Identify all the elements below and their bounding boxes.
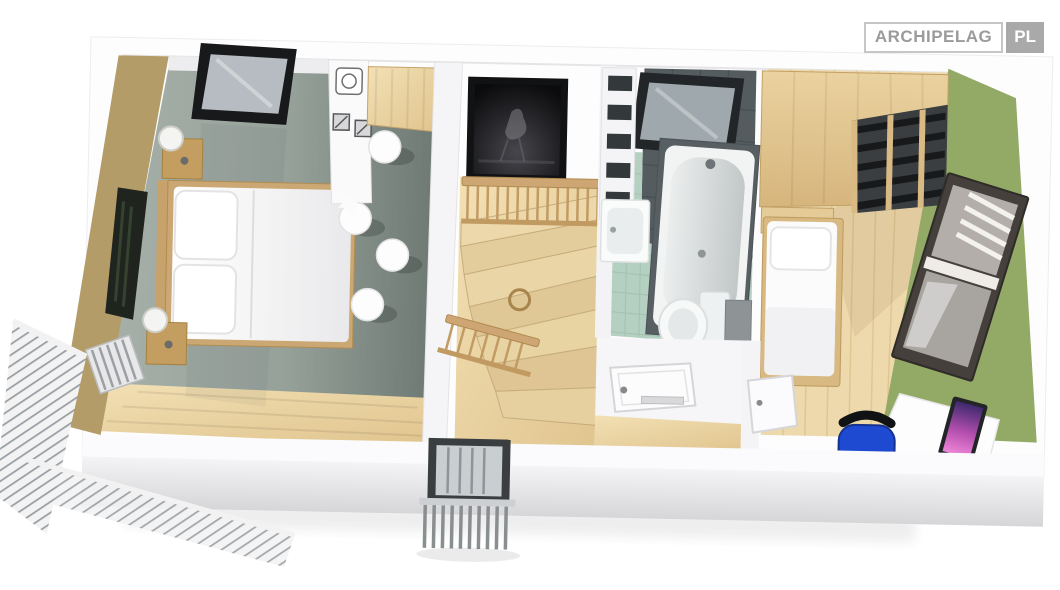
sink	[336, 68, 363, 95]
wall-table	[367, 67, 440, 132]
floorplan-page	[0, 0, 1060, 590]
stool	[368, 131, 401, 164]
skylight-window	[191, 43, 297, 125]
bathroom	[593, 65, 763, 450]
balcony-door	[427, 438, 510, 504]
open-shelves	[849, 103, 947, 215]
duvet	[764, 307, 835, 376]
archipelag-logo: ARCHIPELAG PL	[864, 22, 1044, 53]
stool	[376, 239, 409, 272]
building	[0, 35, 1053, 583]
door-glass	[435, 445, 502, 496]
pillow	[174, 191, 237, 260]
bedroom-right	[740, 65, 1044, 477]
pillow	[770, 227, 831, 270]
single-bed	[760, 217, 844, 387]
stool	[351, 288, 384, 321]
door-vent	[641, 396, 683, 404]
logo-tld-badge: PL	[1006, 22, 1044, 53]
lamp	[159, 126, 183, 150]
washbasin	[600, 199, 649, 262]
bathroom-door	[609, 362, 696, 414]
floorplan-3d-render	[0, 0, 1060, 590]
bedroom-door	[747, 375, 798, 434]
towel-shelf	[599, 67, 636, 220]
lamp	[143, 308, 167, 332]
logo-brand-text: ARCHIPELAG	[864, 22, 1003, 53]
framed-artwork	[466, 77, 568, 183]
